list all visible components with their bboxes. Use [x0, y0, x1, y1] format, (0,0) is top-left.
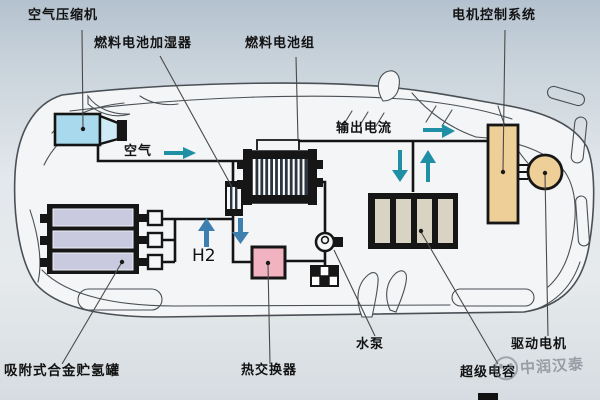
label-air: 空气: [124, 145, 152, 159]
tank-nub-right-2: [139, 236, 148, 244]
humidifier-stripe-2: [235, 187, 237, 209]
valve-cell-1: [311, 266, 320, 276]
label-air-compressor: 空气压缩机: [28, 9, 98, 23]
tank-bar-2: [53, 231, 133, 248]
stack-bar-top: [252, 151, 308, 159]
label-output-current: 输出电流: [336, 122, 392, 136]
label-drive-motor: 驱动电机: [511, 338, 567, 352]
label-humidifier: 燃料电池加湿器: [94, 37, 192, 51]
tank-valve-1: [148, 211, 162, 225]
tank-bar-1: [53, 209, 133, 226]
dot-controller: [501, 170, 505, 174]
stack-bar-bottom: [252, 195, 308, 203]
tank-tab-left-1: [40, 214, 47, 223]
label-motor-controller: 电机控制系统: [452, 9, 536, 23]
dot-motor: [543, 171, 547, 175]
watermark-text: 中润汉泰: [519, 352, 584, 377]
tank-tab-left-3: [40, 258, 47, 267]
air-compressor-body: [55, 114, 100, 145]
supercap-bar-4: [438, 199, 453, 243]
tank-tab-left-2: [40, 236, 47, 245]
valve-cell-2: [329, 266, 338, 276]
tank-nub-right-3: [139, 258, 148, 266]
valve-cell-3: [320, 276, 329, 286]
valve-block: [311, 266, 338, 286]
dot-compressor: [81, 127, 85, 131]
supercap-bar-3: [417, 199, 432, 243]
label-fuel-cell-stack: 燃料电池组: [245, 37, 315, 51]
supercapacitor: [368, 193, 458, 249]
label-hydrogen-tank: 吸附式合金贮氢罐: [4, 364, 120, 379]
fuel-cell-stack: [237, 149, 323, 205]
watermark-logo-icon: [493, 355, 519, 381]
stack-endplate-left: [243, 149, 252, 205]
stack-endplate-right: [308, 149, 317, 205]
tank-nub-right-1: [139, 214, 148, 222]
label-h2: H2: [192, 247, 216, 266]
stack-bump-r1: [317, 160, 323, 169]
dot-supercap: [419, 229, 423, 233]
humidifier-cap-bottom: [225, 209, 243, 215]
label-water-pump: 水泵: [356, 338, 384, 352]
supercap-bar-2: [396, 199, 411, 243]
supercap-bar-1: [375, 199, 390, 243]
humidifier-stripe-1: [230, 187, 232, 209]
air-compressor-outlet: [117, 120, 127, 141]
tank-valve-3: [148, 255, 162, 269]
fuel-cell-vehicle-diagram: 空气压缩机 燃料电池加湿器 燃料电池组 电机控制系统 输出电流 空气 H2 吸附…: [0, 0, 600, 400]
tank-valve-2: [148, 233, 162, 247]
label-heat-exchanger: 热交换器: [241, 364, 297, 378]
stack-bump-r2: [317, 178, 323, 187]
stack-bump-l1: [237, 160, 243, 169]
hydrogen-tank: [40, 204, 162, 274]
car-headlight-1: [546, 85, 586, 107]
watermark-black-bar: [478, 393, 498, 400]
diagram-canvas: [0, 0, 600, 400]
dot-tank: [120, 260, 124, 264]
dot-heat-exchanger: [266, 261, 270, 265]
pump-housing: [316, 233, 334, 251]
stack-bump-l2: [237, 180, 243, 189]
pump-stub: [334, 237, 343, 247]
